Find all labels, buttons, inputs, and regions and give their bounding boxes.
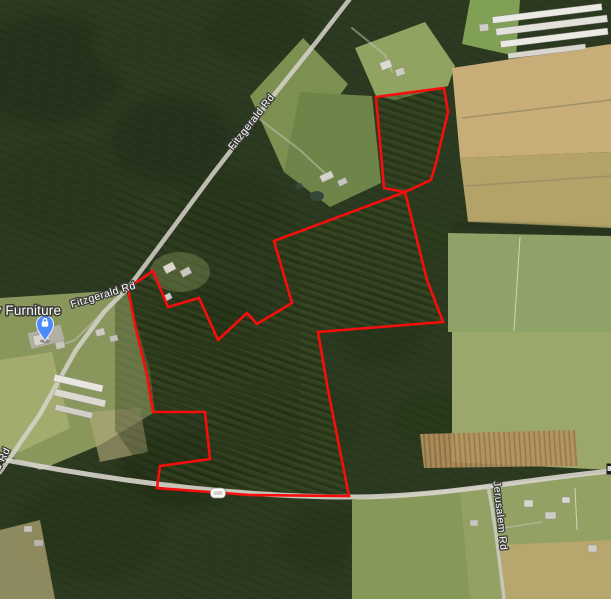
satellite-map-canvas[interactable]: Fitzgerald Rd Fitzgerald Rd rald Rd Jeru… bbox=[0, 0, 611, 599]
poi-label-furniture[interactable]: ay Furniture bbox=[0, 303, 61, 318]
route-shield-icon[interactable] bbox=[211, 488, 226, 498]
map-svg: Fitzgerald Rd Fitzgerald Rd rald Rd Jeru… bbox=[0, 0, 611, 599]
edge-badge-icon bbox=[607, 464, 611, 475]
